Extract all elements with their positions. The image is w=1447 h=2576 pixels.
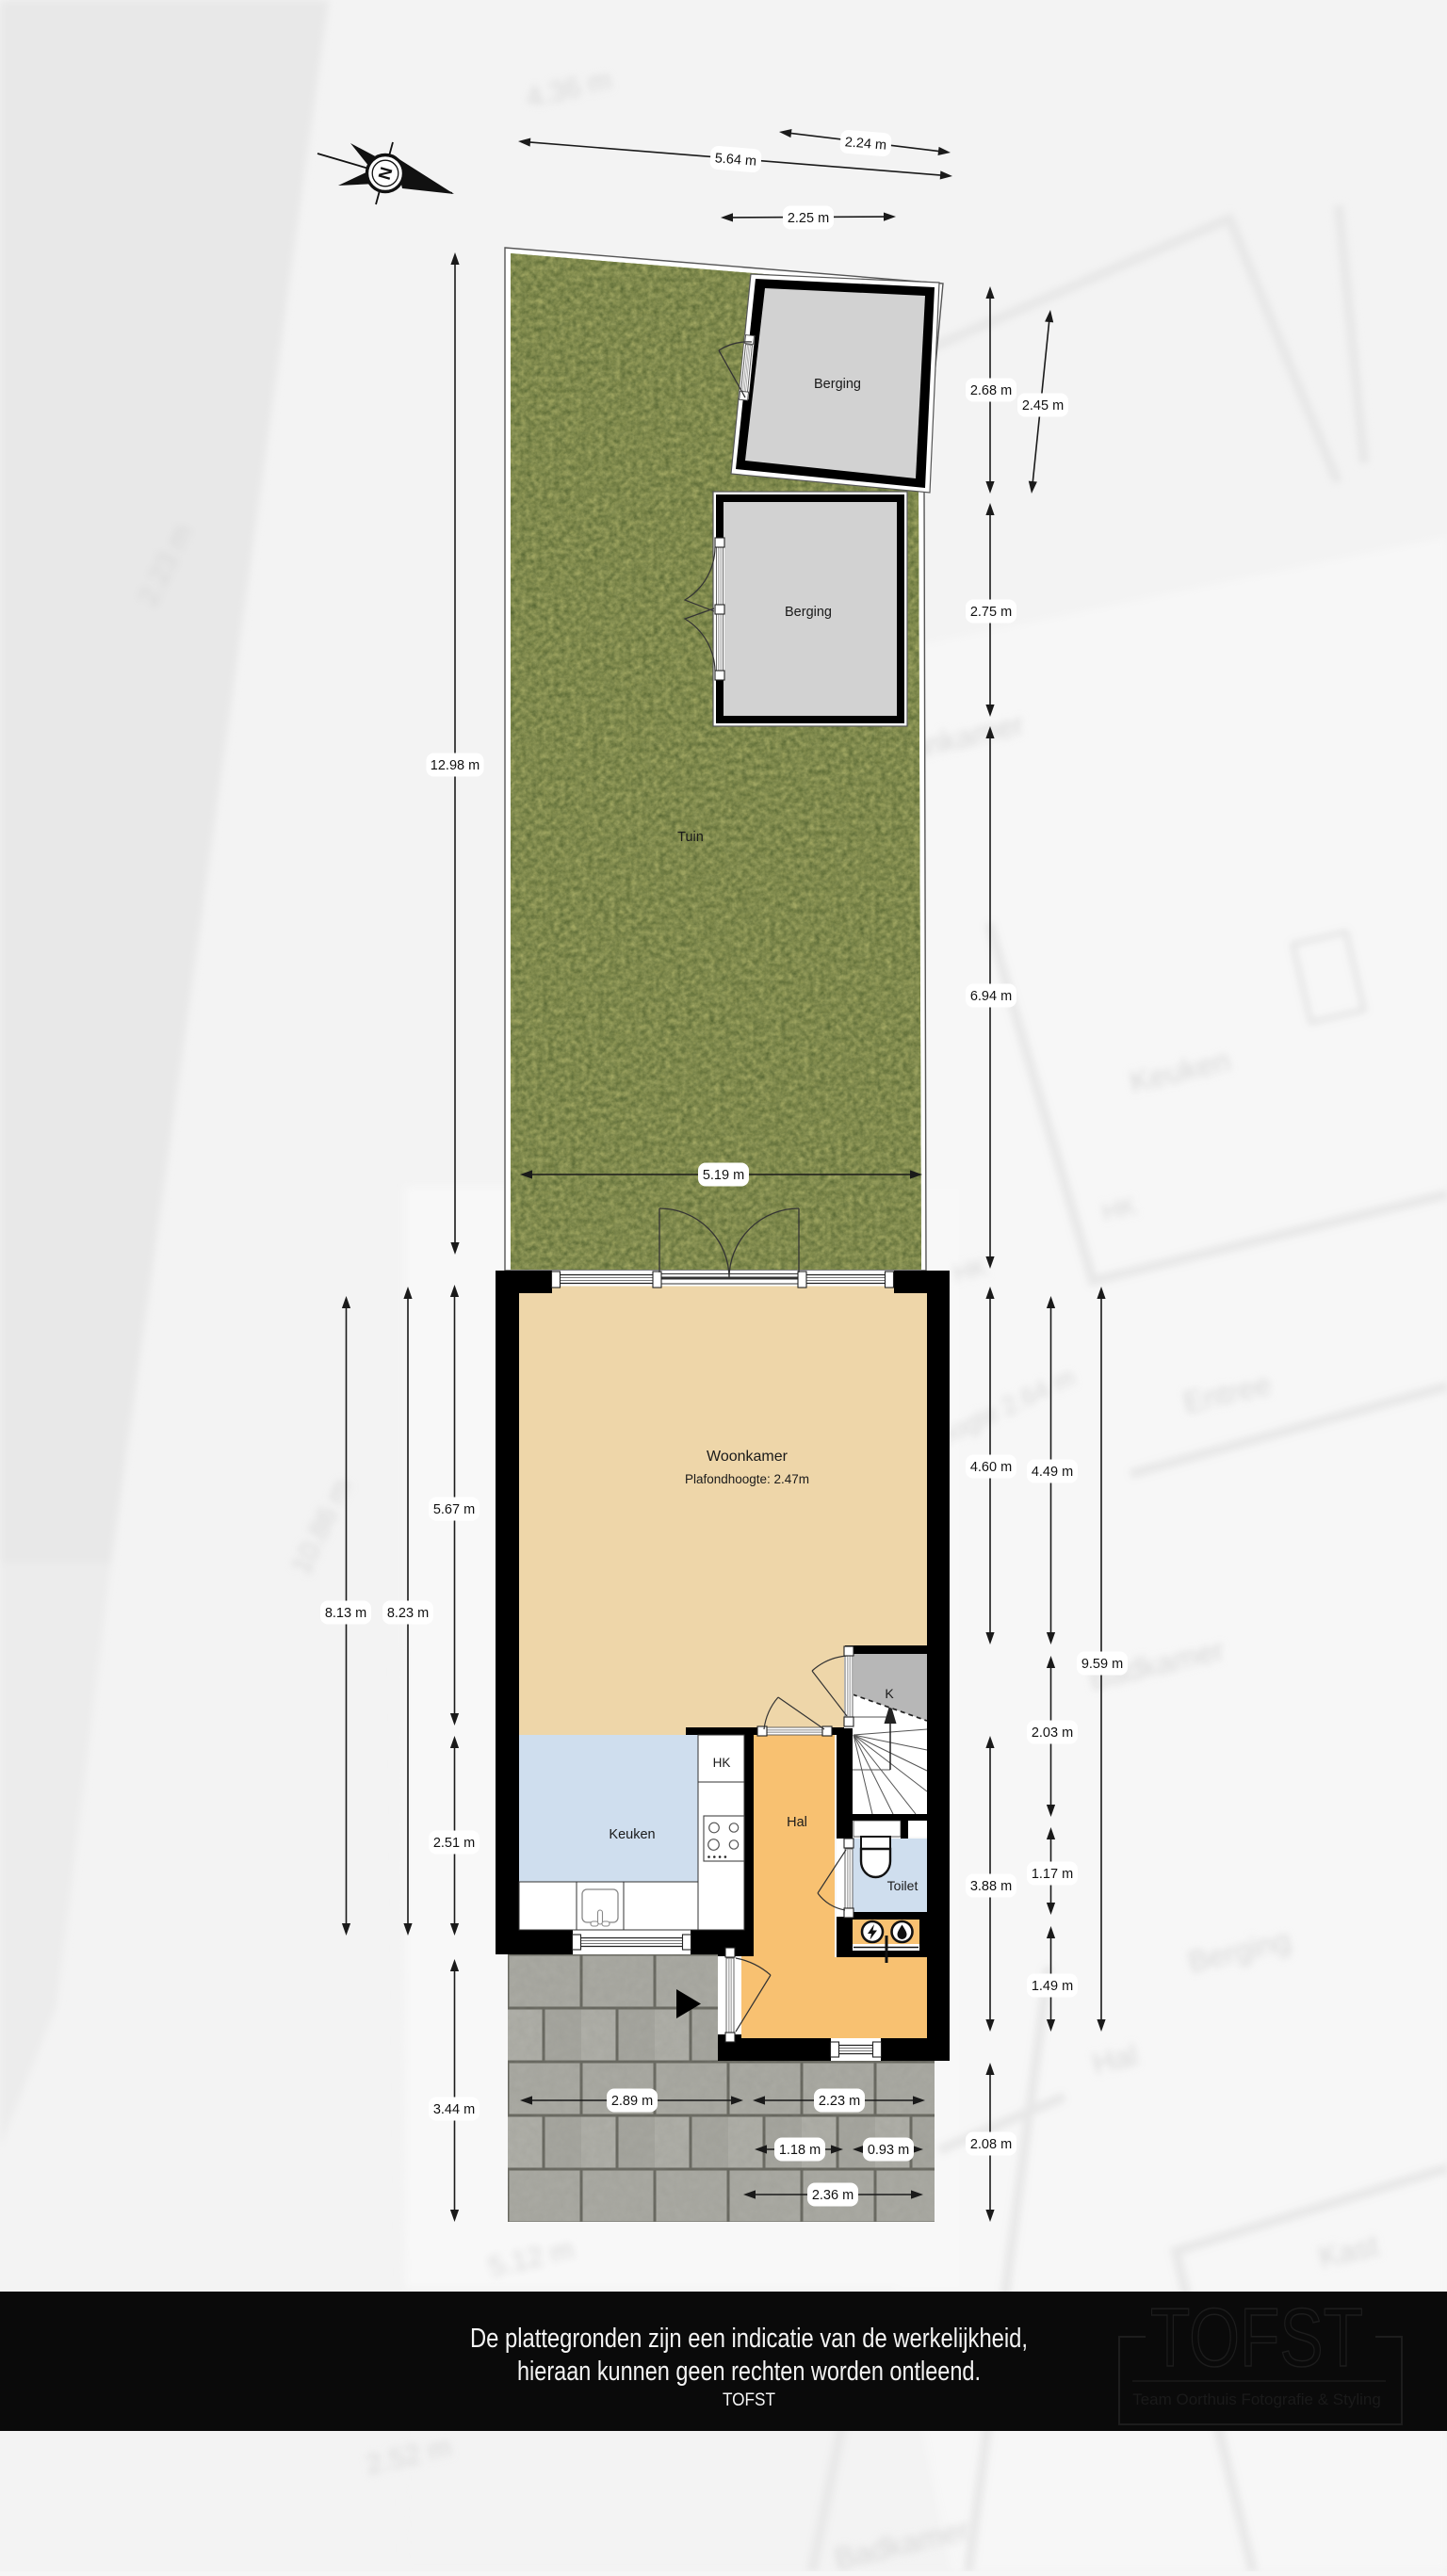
svg-text:Woonkamer: Woonkamer [707,1449,789,1465]
svg-text:2.68 m: 2.68 m [970,383,1012,398]
svg-text:1.18 m: 1.18 m [779,2143,821,2158]
svg-text:De plattegronden zijn een indi: De plattegronden zijn een indicatie van … [470,2324,1028,2354]
svg-text:Hal: Hal [787,1815,807,1830]
svg-text:5.19 m: 5.19 m [703,1168,744,1183]
svg-text:2.25 m: 2.25 m [788,211,829,226]
svg-text:hieraan kunnen geen rechten wo: hieraan kunnen geen rechten worden ontle… [517,2357,981,2387]
svg-text:Plafondhoogte: 2.47m: Plafondhoogte: 2.47m [685,1472,809,1486]
svg-text:TOFST: TOFST [723,2390,775,2410]
svg-text:12.98 m: 12.98 m [431,758,480,773]
svg-text:2.03 m: 2.03 m [1032,1725,1073,1741]
svg-text:Berging: Berging [814,377,861,392]
svg-text:2.51 m: 2.51 m [433,1836,475,1851]
svg-text:1.17 m: 1.17 m [1032,1867,1073,1882]
svg-text:2.89 m: 2.89 m [611,2094,653,2109]
svg-text:4.60 m: 4.60 m [970,1460,1012,1475]
svg-text:Toilet: Toilet [887,1878,919,1893]
svg-text:Berging: Berging [785,605,832,620]
svg-text:Tuin: Tuin [677,830,704,845]
svg-text:9.59 m: 9.59 m [1081,1657,1123,1672]
svg-text:2.23 m: 2.23 m [819,2094,860,2109]
svg-text:2.08 m: 2.08 m [970,2137,1012,2152]
svg-text:0.93 m: 0.93 m [868,2143,909,2158]
svg-text:6.94 m: 6.94 m [970,989,1012,1004]
svg-text:8.23 m: 8.23 m [387,1606,429,1621]
svg-text:2.45 m: 2.45 m [1022,398,1064,413]
svg-text:1.49 m: 1.49 m [1032,1979,1073,1994]
svg-text:3.44 m: 3.44 m [433,2102,475,2117]
svg-text:2.36 m: 2.36 m [812,2188,854,2203]
svg-text:HK: HK [713,1756,731,1770]
svg-text:3.88 m: 3.88 m [970,1879,1012,1894]
svg-text:K: K [885,1686,894,1701]
svg-text:5.67 m: 5.67 m [433,1502,475,1517]
svg-text:Team Oorthuis Fotografie & Sty: Team Oorthuis Fotografie & Styling [1132,2390,1381,2408]
svg-text:Keuken: Keuken [609,1827,655,1842]
svg-text:8.13 m: 8.13 m [325,1606,366,1621]
svg-text:4.49 m: 4.49 m [1032,1465,1073,1480]
svg-text:2.75 m: 2.75 m [970,605,1012,620]
svg-text:TOFST: TOFST [1150,2291,1363,2384]
